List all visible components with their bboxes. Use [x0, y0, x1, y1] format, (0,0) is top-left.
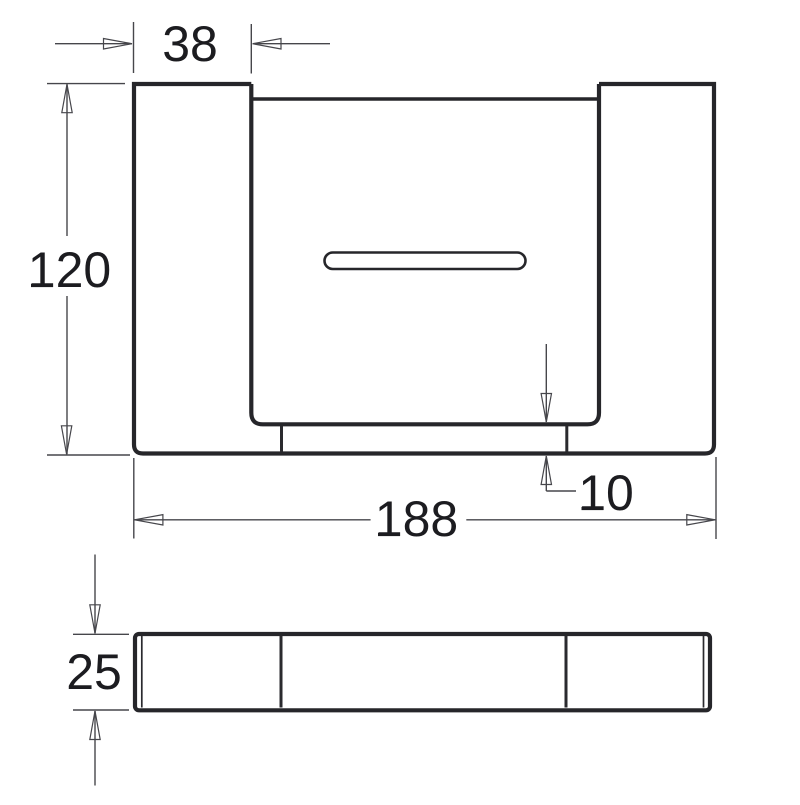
svg-text:38: 38 [162, 16, 218, 72]
svg-text:25: 25 [66, 644, 122, 700]
svg-text:10: 10 [578, 465, 634, 521]
svg-text:120: 120 [28, 242, 111, 298]
svg-text:188: 188 [375, 491, 458, 547]
